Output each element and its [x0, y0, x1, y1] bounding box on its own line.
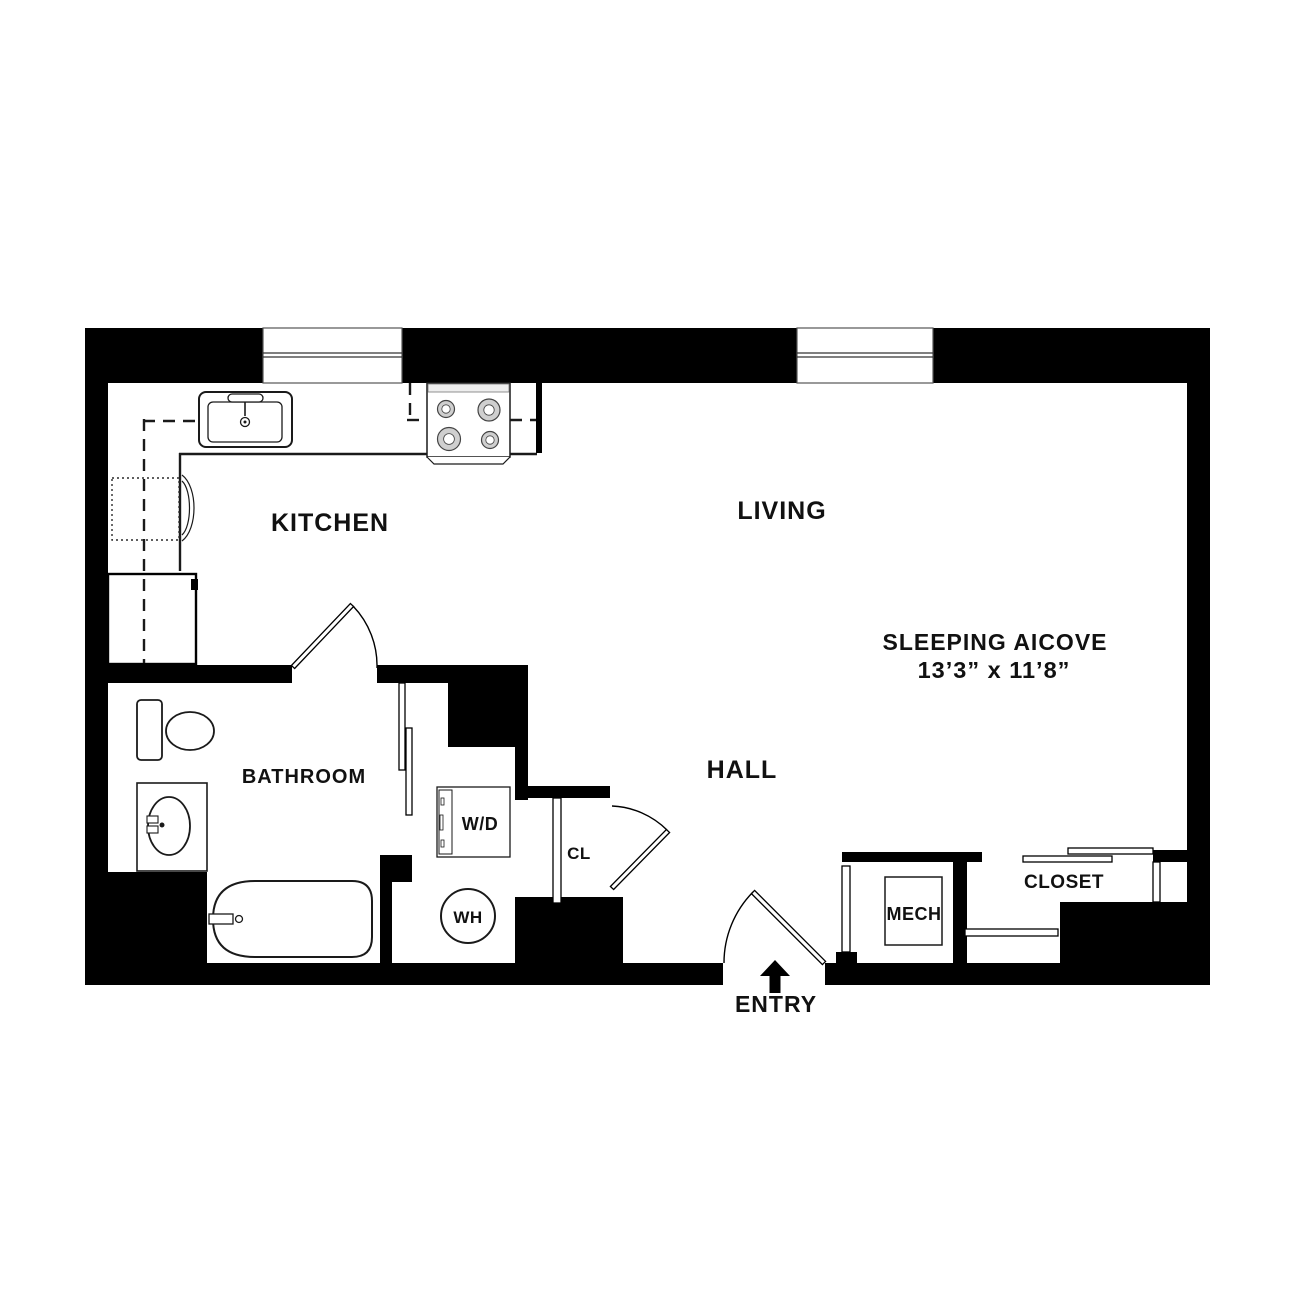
closet-partition [553, 798, 561, 903]
window-icon [797, 328, 933, 383]
vanity-sink-icon [137, 783, 207, 871]
wall-bathroom-south [108, 872, 207, 963]
wall-bathroom-east-mid [380, 855, 412, 882]
wall-bottom-left [85, 963, 723, 985]
label-closet: CLOSET [1024, 872, 1104, 893]
burner-icon [482, 432, 499, 449]
wall-laundry-right [515, 747, 528, 800]
wall-cl-top [528, 786, 610, 798]
floor-plan: KITCHEN LIVING SLEEPING AICOVE 13’3” x 1… [0, 0, 1300, 1300]
wall-mech-door-stub [836, 952, 857, 963]
wall-hall-column [448, 683, 528, 747]
wall-entry-left-mass [515, 897, 623, 985]
mech-door [842, 866, 850, 952]
range-icon [427, 383, 510, 464]
sliding-door-icon [965, 929, 1058, 936]
burner-icon [438, 428, 461, 451]
burner-icon [438, 401, 455, 418]
wall-top-left [85, 328, 263, 383]
wall-laundry-top [377, 665, 528, 683]
room-label-kitchen: KITCHEN [271, 509, 389, 537]
room-label-sleeping-alcove: SLEEPING AICOVE [882, 629, 1107, 655]
kitchen-sink-icon [199, 392, 292, 447]
wall-top-mid [402, 328, 797, 383]
room-label-living: LIVING [737, 497, 826, 525]
label-mechanical: MECH [887, 904, 942, 924]
room-label-hall: HALL [707, 756, 778, 784]
wall-top-right [933, 328, 1210, 383]
label-entry: ENTRY [735, 991, 817, 1017]
sliding-door-icon [1153, 862, 1160, 902]
bathtub-icon [209, 881, 372, 957]
wall-kitchen-stub [536, 383, 542, 453]
label-hall-closet: CL [567, 844, 591, 863]
wall-bathroom-top [108, 665, 292, 683]
label-water-heater: WH [453, 908, 482, 927]
wall-mech-right [953, 862, 967, 967]
wall-closet-right-stub [1153, 850, 1187, 862]
window-icon [263, 328, 402, 383]
label-washer-dryer: W/D [462, 814, 499, 834]
wall-left [85, 328, 108, 985]
burner-icon [478, 399, 500, 421]
room-dimensions-sleeping-alcove: 13’3” x 11’8” [918, 657, 1071, 683]
room-label-bathroom: BATHROOM [242, 766, 366, 788]
wall-bathroom-east-low [380, 882, 392, 963]
wall-closet-bottom-mass [1060, 902, 1208, 985]
wall-right [1187, 328, 1210, 985]
refrigerator-icon [108, 574, 198, 664]
wall-mech-top [842, 852, 982, 862]
